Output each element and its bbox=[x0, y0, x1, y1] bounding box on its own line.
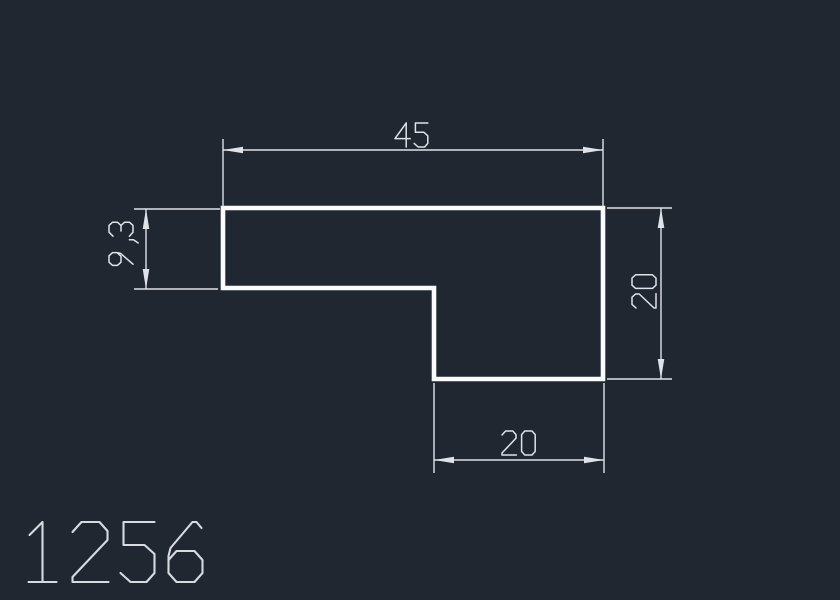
arrowhead bbox=[143, 209, 150, 229]
profile-polygon bbox=[223, 208, 603, 379]
glyph-5 bbox=[121, 522, 155, 582]
glyph-6 bbox=[169, 522, 203, 582]
dimension-text-left-height bbox=[109, 222, 138, 265]
dimension-text-bottom-width bbox=[502, 431, 535, 455]
glyph-3 bbox=[121, 222, 133, 236]
glyph-3 bbox=[109, 222, 121, 236]
glyph-, bbox=[129, 240, 138, 243]
dimension-left-height bbox=[109, 209, 220, 289]
glyph-5 bbox=[414, 123, 428, 147]
arrowhead bbox=[143, 269, 150, 289]
glyph-0 bbox=[632, 275, 656, 289]
dimension-top-width bbox=[223, 123, 603, 207]
arrowhead bbox=[583, 147, 603, 154]
arrowhead bbox=[223, 147, 243, 154]
glyph-2 bbox=[502, 431, 516, 455]
dimension-text-right-height bbox=[632, 275, 656, 308]
glyph-9 bbox=[109, 253, 133, 266]
arrowhead bbox=[658, 208, 665, 228]
dimension-bottom-width bbox=[434, 383, 604, 473]
profile-outline bbox=[223, 208, 603, 379]
part-number-text bbox=[29, 522, 203, 582]
glyph-2 bbox=[73, 522, 109, 582]
dimension-text-top-width bbox=[395, 123, 428, 147]
cad-drawing bbox=[0, 0, 840, 600]
arrowhead bbox=[658, 359, 665, 379]
arrowhead bbox=[584, 457, 604, 464]
glyph-2 bbox=[632, 294, 656, 308]
glyph-4 bbox=[395, 123, 410, 139]
glyph-0 bbox=[522, 431, 536, 455]
cad-viewport bbox=[0, 0, 840, 600]
glyph-1 bbox=[30, 522, 43, 582]
dimension-right-height bbox=[607, 208, 672, 379]
part-number-label bbox=[29, 522, 203, 582]
arrowhead bbox=[434, 457, 454, 464]
